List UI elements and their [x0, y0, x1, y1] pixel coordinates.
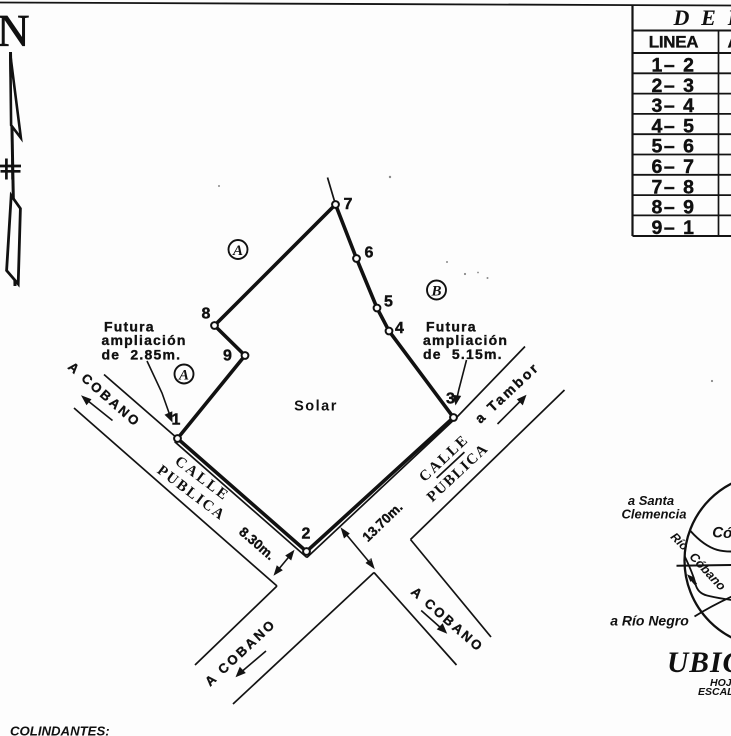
svg-text:de 2.85m.: de 2.85m. [102, 347, 182, 363]
svg-text:A: A [232, 243, 243, 259]
svg-text:1: 1 [172, 412, 181, 429]
svg-text:UBICACIÓN: UBICACIÓN [667, 646, 731, 679]
svg-text:1– 2: 1– 2 [652, 55, 696, 77]
svg-text:5– 6: 5– 6 [652, 136, 696, 158]
svg-text:LINEA: LINEA [649, 33, 699, 52]
svg-text:8– 9: 8– 9 [652, 197, 696, 219]
svg-text:AZ: AZ [728, 33, 731, 52]
svg-text:ampliación: ampliación [102, 332, 187, 348]
svg-text:4– 5: 4– 5 [652, 115, 696, 137]
svg-text:Solar: Solar [294, 399, 338, 415]
svg-text:B: B [430, 283, 441, 299]
svg-text:6– 7: 6– 7 [652, 156, 696, 178]
svg-text:9– 1: 9– 1 [652, 217, 696, 239]
svg-text:N: N [0, 6, 30, 56]
svg-text:7– 8: 7– 8 [652, 176, 696, 198]
svg-text:D: D [673, 5, 690, 30]
svg-text:4: 4 [395, 320, 404, 337]
svg-text:3– 4: 3– 4 [652, 95, 696, 117]
svg-text:Clemencia: Clemencia [621, 506, 686, 521]
svg-text:3: 3 [446, 391, 455, 408]
svg-text:8: 8 [202, 306, 211, 323]
svg-text:R: R [727, 5, 731, 30]
svg-text:7: 7 [344, 196, 353, 213]
svg-text:5: 5 [384, 294, 393, 311]
svg-text:E: E [700, 5, 716, 30]
svg-text:COLINDANTES:: COLINDANTES: [10, 724, 110, 736]
svg-text:a Río Negro: a Río Negro [610, 613, 689, 629]
svg-text:9: 9 [223, 348, 232, 365]
svg-text:ESCALA 1: ESCALA 1 [698, 686, 731, 698]
svg-text:2– 3: 2– 3 [652, 75, 696, 97]
svg-text:2: 2 [302, 526, 311, 543]
svg-text:6: 6 [365, 245, 374, 262]
svg-text:Cóbano: Cóbano [712, 524, 731, 544]
svg-text:A: A [178, 367, 189, 383]
svg-text:de 5.15m.: de 5.15m. [423, 346, 503, 362]
